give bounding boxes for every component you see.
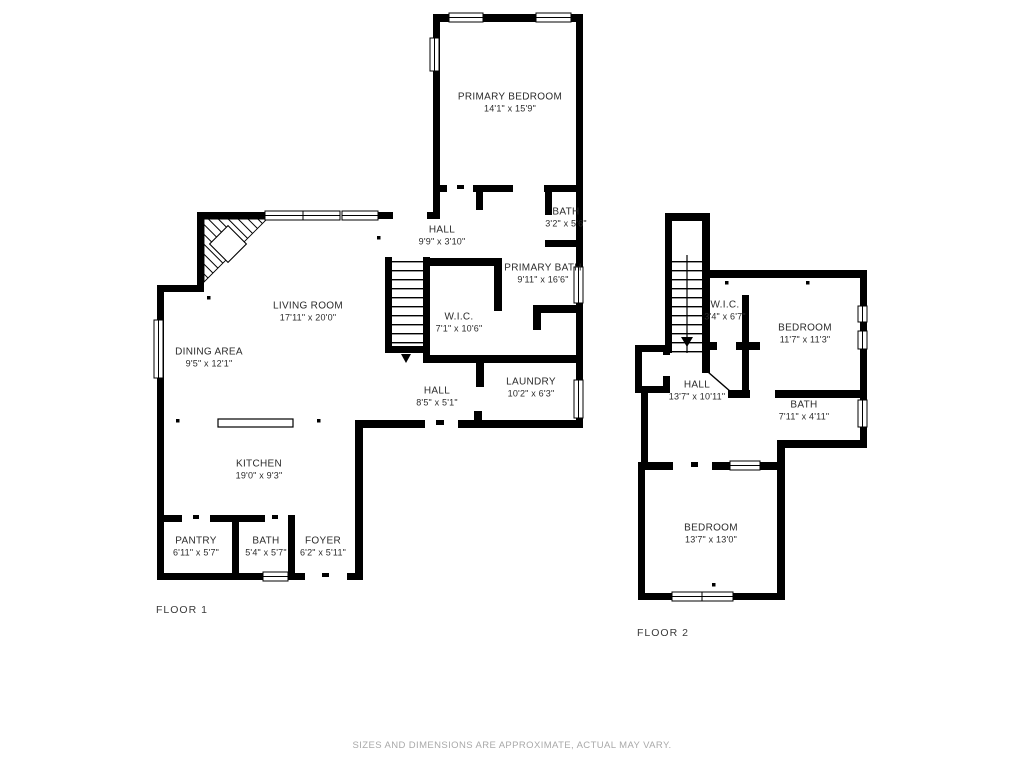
room-label-hall-f2: HALL 13'7" x 10'11" bbox=[669, 379, 726, 404]
room-name: PANTRY bbox=[173, 535, 219, 548]
room-name: HALL bbox=[416, 385, 458, 398]
room-dims: 17'11" x 20'0" bbox=[273, 313, 343, 325]
floor2-stairs bbox=[672, 255, 702, 353]
floorplan-canvas: PRIMARY BEDROOM 14'1" x 15'9" BATH 3'2" … bbox=[0, 0, 1024, 768]
room-label-hall-lower: HALL 8'5" x 5'1" bbox=[416, 385, 458, 410]
room-label-wic-f2: W.I.C. 3'4" x 6'7" bbox=[704, 299, 746, 324]
room-dims: 3'2" x 5'6" bbox=[545, 219, 587, 231]
room-label-laundry: LAUNDRY 10'2" x 6'3" bbox=[506, 376, 556, 401]
room-label-dining-area: DINING AREA 9'5" x 12'1" bbox=[175, 346, 243, 371]
room-name: W.I.C. bbox=[436, 311, 483, 324]
room-dims: 7'11" x 4'11" bbox=[779, 412, 830, 424]
room-name: BATH bbox=[779, 399, 830, 412]
room-name: W.I.C. bbox=[704, 299, 746, 312]
room-name: LIVING ROOM bbox=[273, 300, 343, 313]
room-dims: 6'2" x 5'11" bbox=[300, 548, 346, 560]
floor2-walls bbox=[635, 213, 867, 600]
room-label-bath-f2: BATH 7'11" x 4'11" bbox=[779, 399, 830, 424]
room-name: PRIMARY BATH bbox=[504, 262, 582, 275]
room-label-primary-bedroom: PRIMARY BEDROOM 14'1" x 15'9" bbox=[458, 91, 562, 116]
room-name: HALL bbox=[669, 379, 726, 392]
room-label-living-room: LIVING ROOM 17'11" x 20'0" bbox=[273, 300, 343, 325]
room-dims: 19'0" x 9'3" bbox=[236, 471, 283, 483]
room-label-bedroom-f2-bottom: BEDROOM 13'7" x 13'0" bbox=[684, 522, 738, 547]
room-name: DINING AREA bbox=[175, 346, 243, 359]
room-name: KITCHEN bbox=[236, 458, 283, 471]
room-label-hall-upper: HALL 9'9" x 3'10" bbox=[419, 224, 466, 249]
room-name: PRIMARY BEDROOM bbox=[458, 91, 562, 104]
room-dims: 9'5" x 12'1" bbox=[175, 359, 243, 371]
room-label-wic: W.I.C. 7'1" x 10'6" bbox=[436, 311, 483, 336]
room-name: BATH bbox=[245, 535, 287, 548]
room-label-bedroom-f2-top: BEDROOM 11'7" x 11'3" bbox=[778, 322, 832, 347]
room-dims: 5'4" x 5'7" bbox=[245, 548, 287, 560]
room-dims: 11'7" x 11'3" bbox=[778, 335, 832, 347]
room-label-pantry: PANTRY 6'11" x 5'7" bbox=[173, 535, 219, 560]
room-dims: 9'9" x 3'10" bbox=[419, 237, 466, 249]
room-name: BATH bbox=[545, 206, 587, 219]
disclaimer-text: SIZES AND DIMENSIONS ARE APPROXIMATE, AC… bbox=[353, 740, 672, 751]
room-label-bath-lower: BATH 5'4" x 5'7" bbox=[245, 535, 287, 560]
room-name: BEDROOM bbox=[684, 522, 738, 535]
room-dims: 9'11" x 16'6" bbox=[504, 275, 582, 287]
floor2-caption: FLOOR 2 bbox=[637, 627, 689, 639]
room-name: FOYER bbox=[300, 535, 346, 548]
room-name: BEDROOM bbox=[778, 322, 832, 335]
room-dims: 6'11" x 5'7" bbox=[173, 548, 219, 560]
room-dims: 14'1" x 15'9" bbox=[458, 104, 562, 116]
room-dims: 13'7" x 10'11" bbox=[669, 392, 726, 404]
room-dims: 3'4" x 6'7" bbox=[704, 312, 746, 324]
room-dims: 10'2" x 6'3" bbox=[506, 389, 556, 401]
room-name: LAUNDRY bbox=[506, 376, 556, 389]
room-dims: 7'1" x 10'6" bbox=[436, 324, 483, 336]
room-label-bath-upper: BATH 3'2" x 5'6" bbox=[545, 206, 587, 231]
room-dims: 8'5" x 5'1" bbox=[416, 398, 458, 410]
room-label-kitchen: KITCHEN 19'0" x 9'3" bbox=[236, 458, 283, 483]
room-label-primary-bath: PRIMARY BATH 9'11" x 16'6" bbox=[504, 262, 582, 287]
floor1-fireplace bbox=[204, 219, 267, 282]
floor1-caption: FLOOR 1 bbox=[156, 604, 208, 616]
room-dims: 13'7" x 13'0" bbox=[684, 535, 738, 547]
room-name: HALL bbox=[419, 224, 466, 237]
room-label-foyer: FOYER 6'2" x 5'11" bbox=[300, 535, 346, 560]
floor1-kitchen-island bbox=[218, 419, 293, 427]
